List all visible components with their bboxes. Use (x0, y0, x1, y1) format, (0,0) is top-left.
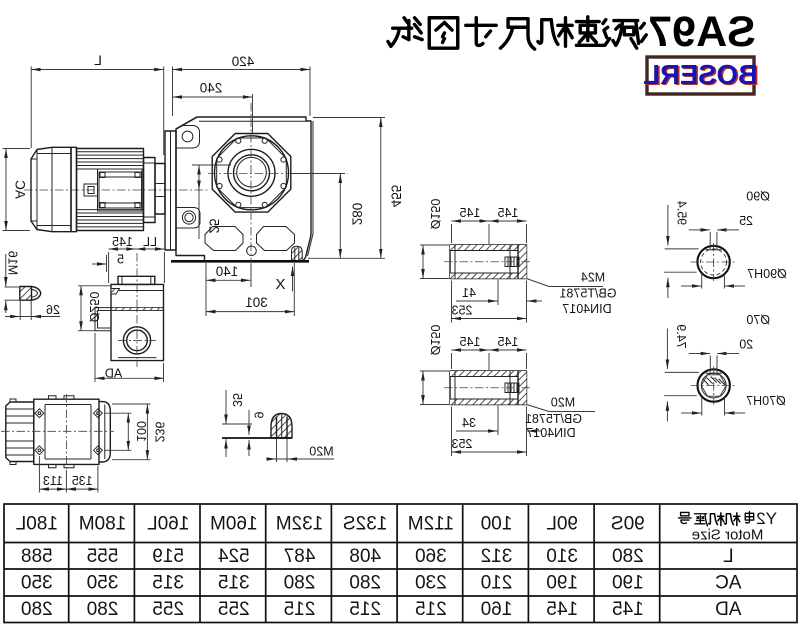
svg-text:210: 210 (481, 573, 513, 594)
svg-text:408: 408 (349, 546, 381, 567)
svg-text:L: L (94, 52, 102, 68)
svg-text:34: 34 (462, 416, 476, 430)
svg-text:Ø150: Ø150 (428, 199, 442, 230)
svg-text:253: 253 (452, 304, 473, 318)
svg-text:113: 113 (43, 474, 63, 488)
svg-text:BOSERL: BOSERL (643, 59, 758, 90)
svg-text:L: L (723, 546, 734, 567)
svg-text:LL: LL (143, 235, 157, 249)
svg-text:145: 145 (460, 206, 481, 220)
svg-text:145: 145 (498, 335, 519, 349)
svg-text:180M: 180M (79, 514, 127, 535)
svg-text:132M: 132M (276, 514, 324, 535)
svg-text:Motor Size: Motor Size (692, 527, 764, 544)
svg-text:112M: 112M (408, 514, 454, 535)
svg-text:255: 255 (152, 599, 184, 620)
svg-text:95.4: 95.4 (674, 201, 688, 225)
svg-text:420: 420 (232, 54, 255, 69)
svg-text:315: 315 (218, 573, 250, 594)
svg-text:524: 524 (218, 546, 250, 567)
svg-text:255: 255 (218, 599, 250, 620)
svg-text:555: 555 (87, 546, 119, 567)
svg-text:145: 145 (612, 599, 644, 620)
svg-text:M20: M20 (551, 396, 575, 410)
svg-text:AC: AC (715, 573, 741, 594)
svg-text:487: 487 (284, 546, 316, 567)
svg-text:X: X (275, 276, 285, 293)
svg-text:Ø70: Ø70 (746, 313, 770, 327)
svg-text:25: 25 (739, 214, 753, 228)
svg-text:SA97: SA97 (648, 8, 756, 56)
svg-text:20: 20 (739, 338, 753, 352)
svg-text:Ø70H7: Ø70H7 (746, 394, 786, 408)
svg-text:25: 25 (207, 218, 222, 233)
svg-text:Ø150: Ø150 (428, 325, 442, 356)
svg-text:519: 519 (152, 546, 184, 567)
svg-text:AD: AD (105, 367, 122, 381)
svg-text:26: 26 (46, 303, 60, 317)
svg-text:M20: M20 (309, 445, 333, 459)
svg-text:236: 236 (153, 422, 167, 443)
svg-text:215: 215 (349, 599, 381, 620)
svg-text:Ø90: Ø90 (746, 189, 770, 203)
svg-text:310: 310 (546, 546, 578, 567)
svg-text:280: 280 (349, 573, 381, 594)
svg-text:M24: M24 (581, 271, 605, 285)
svg-text:DIN4017: DIN4017 (562, 302, 611, 316)
svg-text:315: 315 (152, 573, 184, 594)
svg-text:312: 312 (481, 546, 513, 567)
svg-text:GB/T5781: GB/T5781 (559, 287, 616, 301)
svg-text:140: 140 (216, 264, 239, 279)
svg-text:145: 145 (112, 235, 133, 249)
svg-text:145: 145 (546, 599, 578, 620)
svg-text:280: 280 (350, 203, 365, 226)
svg-text:Ø90H7: Ø90H7 (747, 267, 787, 281)
svg-text:41: 41 (462, 286, 476, 300)
svg-text:455: 455 (389, 185, 404, 208)
svg-text:160: 160 (481, 599, 513, 620)
svg-text:240: 240 (200, 81, 223, 96)
svg-text:90S: 90S (611, 514, 645, 535)
svg-text:132S: 132S (343, 514, 387, 535)
svg-text:90L: 90L (546, 514, 578, 535)
svg-text:280: 280 (87, 599, 119, 620)
svg-text:5: 5 (117, 253, 124, 267)
svg-text:190: 190 (546, 573, 578, 594)
svg-text:190: 190 (612, 573, 644, 594)
svg-text:Ø250: Ø250 (87, 292, 101, 323)
svg-text:AD: AD (715, 599, 741, 620)
svg-text:135: 135 (72, 474, 93, 488)
svg-text:GB/T5781: GB/T5781 (525, 412, 582, 426)
svg-text:160M: 160M (210, 514, 258, 535)
svg-text:160L: 160L (147, 514, 189, 535)
svg-text:280: 280 (284, 573, 316, 594)
svg-text:145: 145 (498, 206, 519, 220)
svg-text:215: 215 (284, 599, 316, 620)
svg-text:M16: M16 (6, 251, 20, 275)
svg-text:350: 350 (87, 573, 119, 594)
svg-text:215: 215 (415, 599, 447, 620)
svg-text:253: 253 (452, 437, 473, 451)
svg-text:280: 280 (612, 546, 644, 567)
svg-text:145: 145 (460, 335, 481, 349)
svg-text:350: 350 (21, 573, 53, 594)
svg-text:DIN4017: DIN4017 (526, 426, 575, 440)
svg-text:35: 35 (230, 393, 244, 407)
svg-text:74.9: 74.9 (674, 324, 688, 348)
svg-text:230: 230 (415, 573, 447, 594)
svg-text:100: 100 (134, 421, 148, 442)
svg-text:588: 588 (21, 546, 53, 567)
svg-text:360: 360 (415, 546, 447, 567)
svg-text:301: 301 (245, 295, 268, 310)
svg-text:100: 100 (481, 514, 513, 535)
svg-text:180L: 180L (16, 514, 58, 535)
svg-text:AC: AC (13, 180, 28, 199)
svg-text:280: 280 (21, 599, 53, 620)
svg-text:9: 9 (252, 411, 266, 418)
svg-text:Y2: Y2 (756, 509, 777, 528)
